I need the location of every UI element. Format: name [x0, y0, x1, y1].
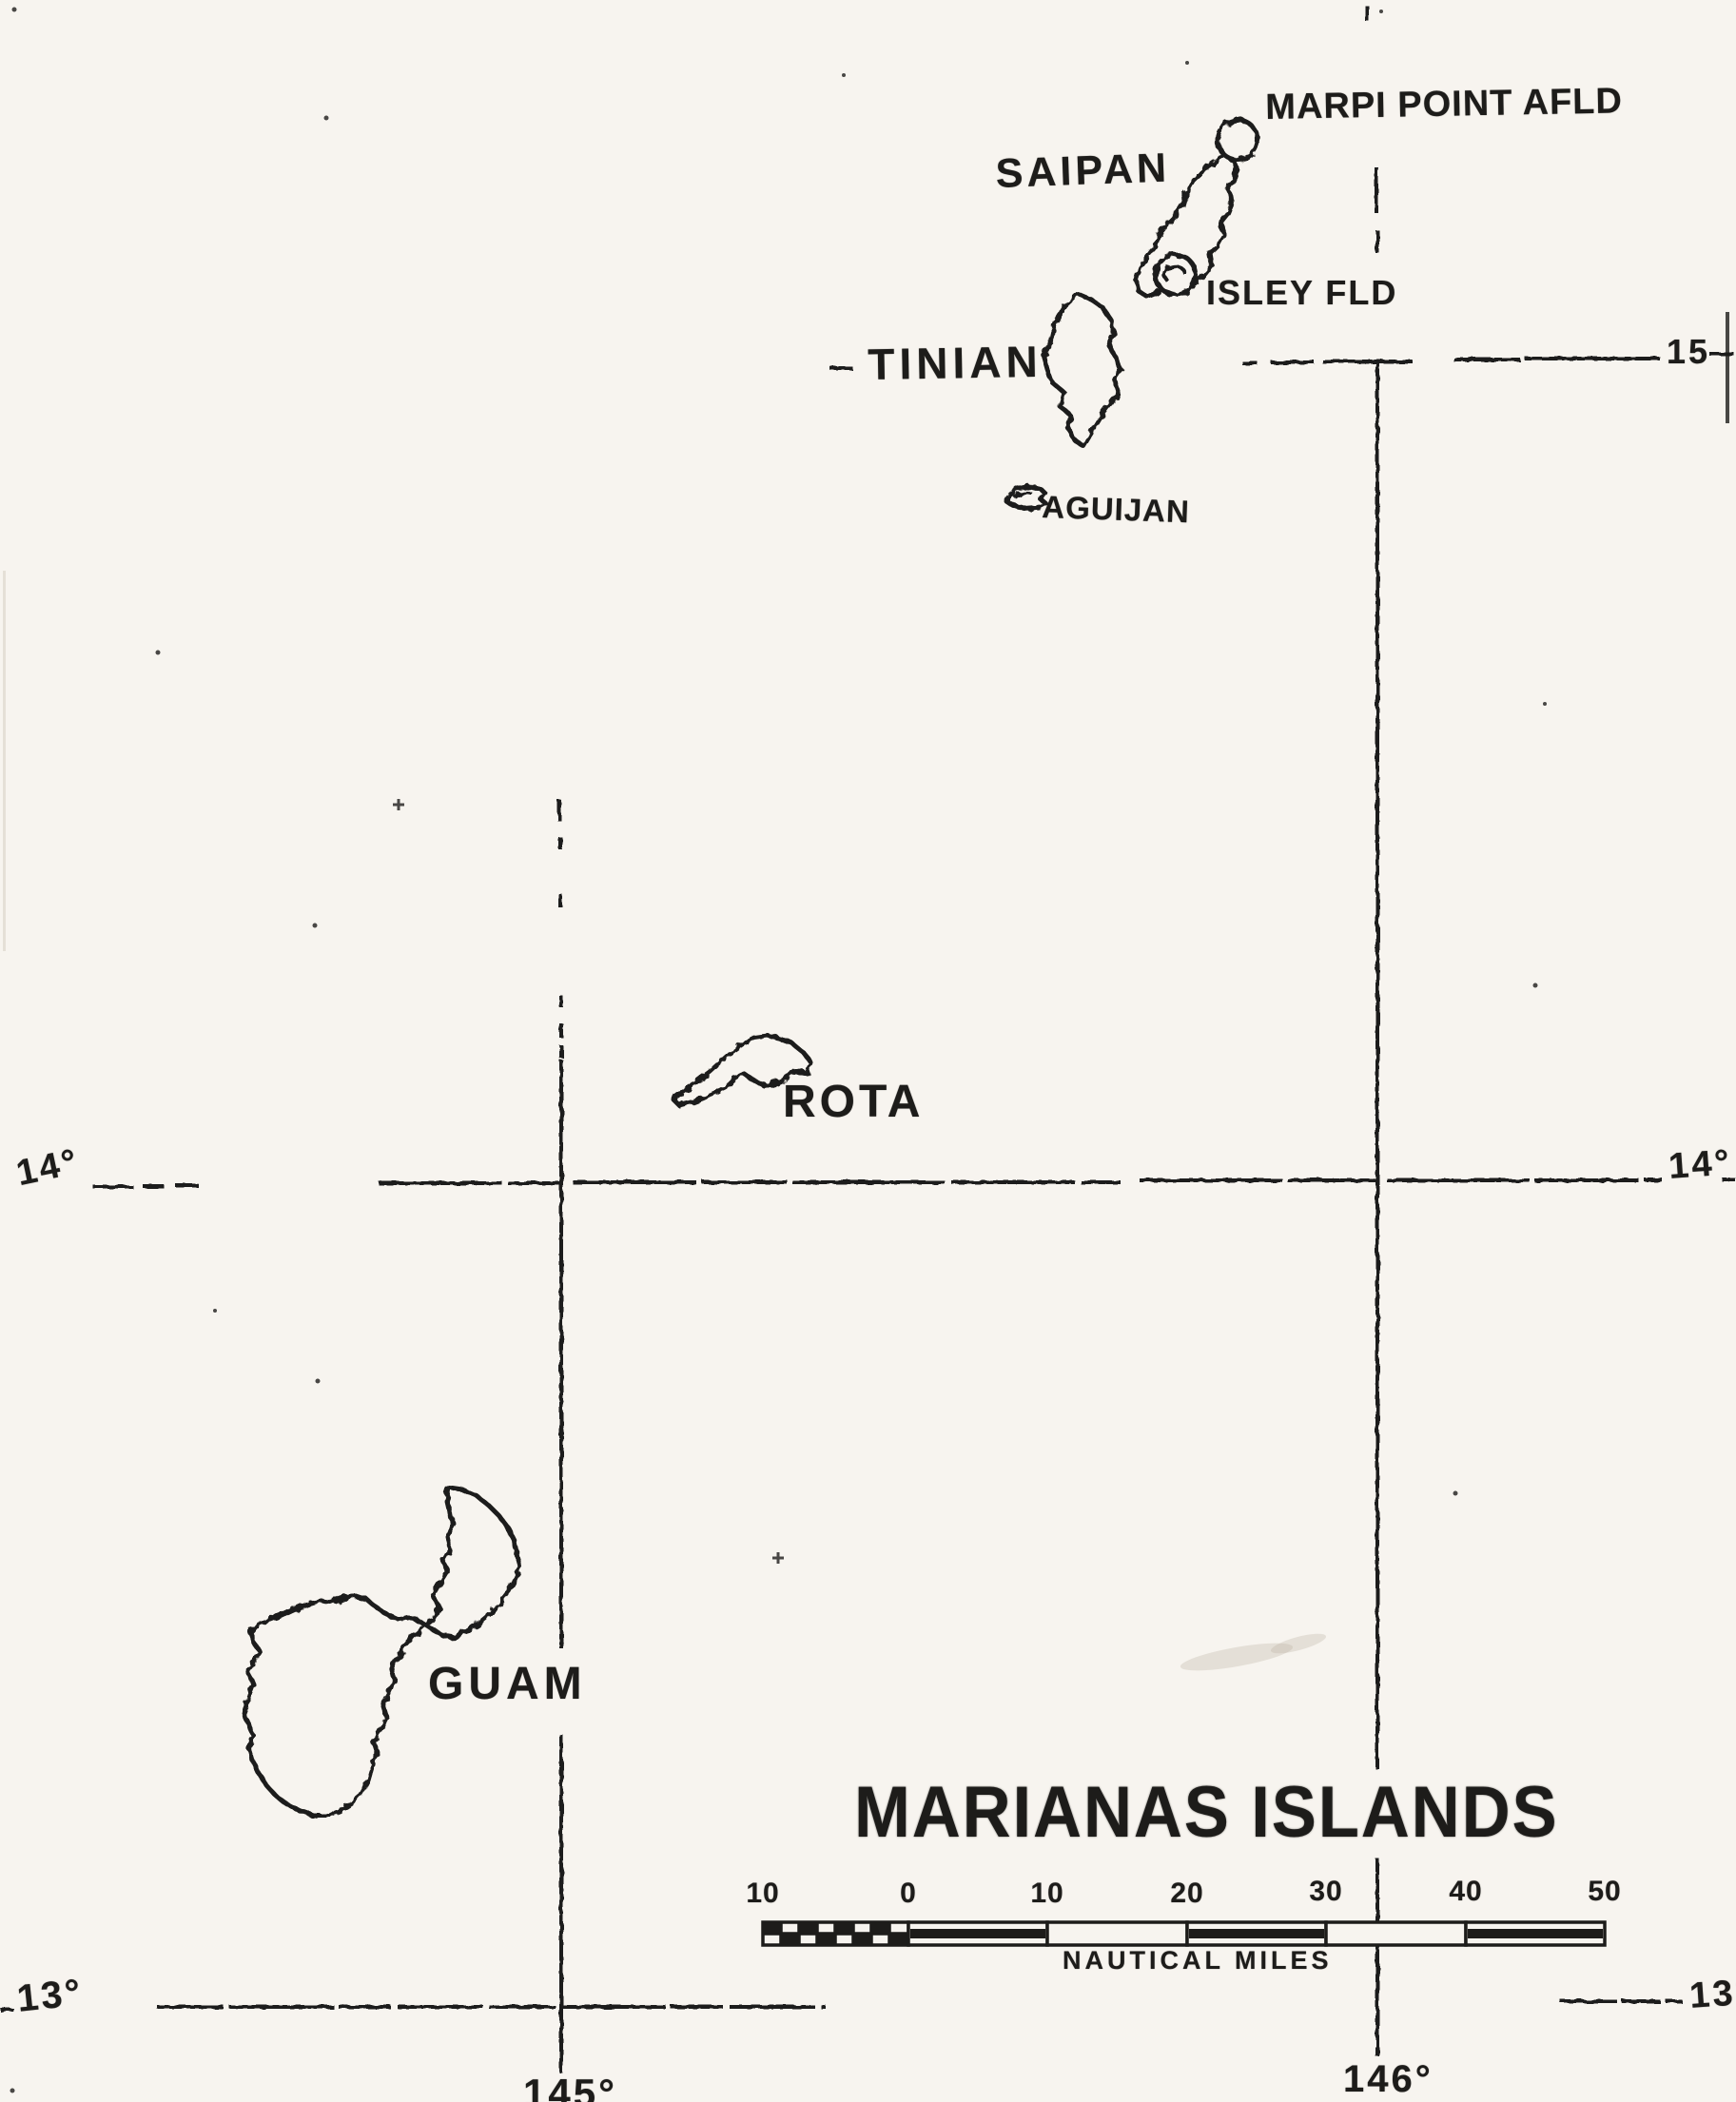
scale-units-label: NAUTICAL MILES [1063, 1948, 1333, 1974]
island-label-aguijan: AGUIJAN [1042, 491, 1191, 527]
scale-tick-10: 10 [1030, 1879, 1063, 1908]
island-outlines [244, 120, 1258, 1816]
longitude-145-label: 145° [523, 2073, 617, 2102]
island-label-rota: ROTA [783, 1080, 924, 1125]
scale-tick-40: 40 [1449, 1878, 1482, 1906]
scale-tick-10-left: 10 [746, 1879, 779, 1908]
latitude-14-right-label: 14° [1668, 1144, 1733, 1185]
scale-tick-20: 20 [1170, 1879, 1203, 1908]
latitude-13-right-label: 13° [1688, 1974, 1736, 2014]
map-title: MARIANAS ISLANDS [854, 1777, 1558, 1849]
marianas-map-page: MARPI POINT AFLD SAIPAN ISLEY FLD TINIAN… [0, 0, 1736, 2102]
scale-tick-0: 0 [900, 1879, 917, 1908]
longitude-145-meridian [559, 800, 561, 2073]
latitude-14-line [93, 1179, 1735, 1187]
latitude-13-line [0, 2001, 1682, 2010]
island-label-guam: GUAM [428, 1662, 587, 1707]
scan-smudges [3, 312, 1727, 1676]
isley-field-circle [1156, 255, 1196, 295]
guam-island-outline [244, 1488, 520, 1816]
marpi-point-airfield-circle [1218, 120, 1258, 160]
latitude-15-right-label: 15 [1667, 335, 1710, 369]
airfield-label-marpi-point: MARPI POINT AFLD [1265, 83, 1623, 126]
scale-bar-main-sections [908, 1922, 1605, 1945]
scale-bar-hatched-section [763, 1922, 908, 1945]
island-label-saipan: SAIPAN [995, 148, 1171, 195]
scale-bar [763, 1922, 1605, 1945]
longitude-146-label: 146° [1343, 2060, 1434, 2098]
tinian-island-outline [1044, 294, 1122, 446]
longitude-146-meridian [1367, 6, 1377, 2056]
island-label-tinian: TINIAN [868, 340, 1043, 386]
left-edge-scan-line [3, 571, 6, 951]
aguijan-island-outline [1006, 486, 1046, 509]
scale-tick-50: 50 [1588, 1878, 1621, 1906]
airfield-label-isley: ISLEY FLD [1206, 276, 1397, 310]
latitude-13-left-label: 13° [15, 1974, 85, 2018]
scale-tick-30: 30 [1309, 1878, 1342, 1906]
